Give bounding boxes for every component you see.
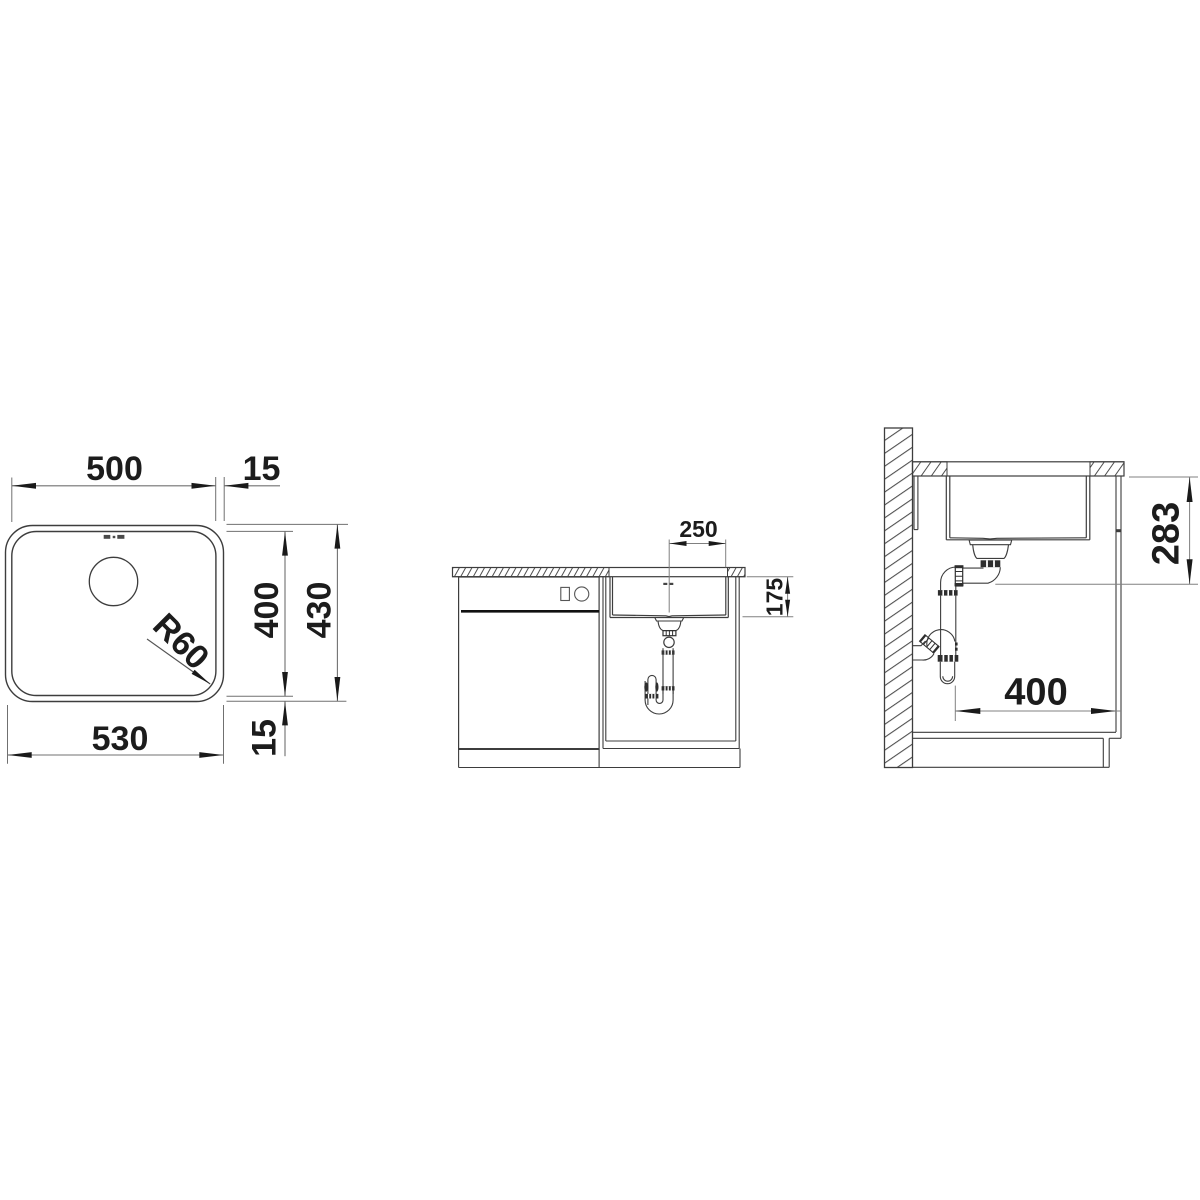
svg-text:430: 430 (301, 582, 339, 639)
svg-text:175: 175 (762, 578, 788, 617)
svg-text:283: 283 (1146, 502, 1188, 565)
svg-text:R60: R60 (145, 606, 216, 677)
svg-text:500: 500 (86, 450, 143, 488)
svg-text:530: 530 (92, 720, 149, 758)
svg-text:250: 250 (679, 516, 717, 542)
svg-text:400: 400 (1004, 672, 1067, 714)
svg-text:400: 400 (248, 582, 286, 639)
svg-text:15: 15 (246, 719, 284, 757)
svg-text:15: 15 (243, 450, 281, 488)
